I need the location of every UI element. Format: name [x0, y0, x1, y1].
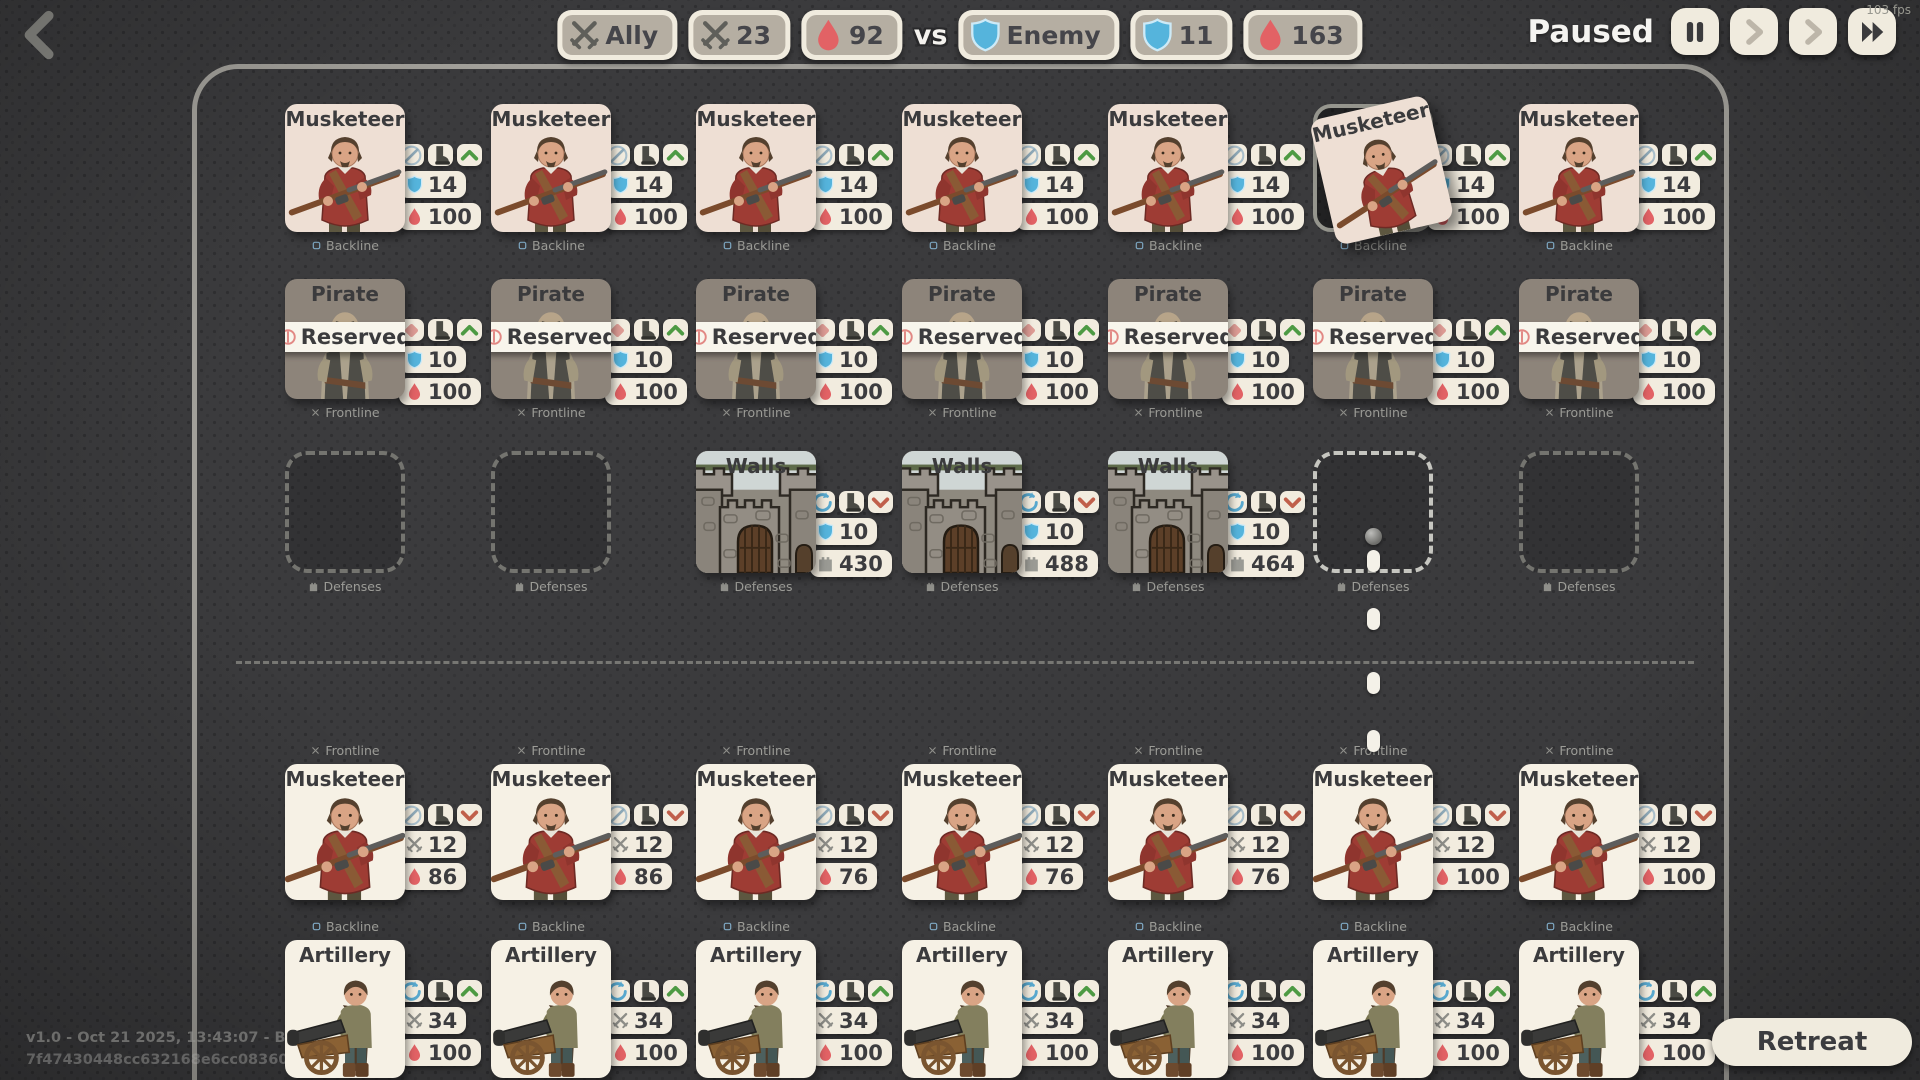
move-icon	[1251, 491, 1276, 513]
unit-card-musketeer[interactable]: Musketeer	[285, 104, 405, 232]
unit-card-pirate[interactable]: PirateReserved	[1519, 279, 1639, 399]
zone-label-defenses: Defenses	[491, 579, 611, 594]
up-icon	[457, 144, 482, 166]
frontline-icon	[1133, 745, 1144, 756]
defenses-icon	[1131, 581, 1142, 592]
unit-card-musketeer[interactable]: Musketeer	[1519, 104, 1639, 232]
unit-stats: 14100	[1016, 144, 1099, 230]
primary-stat: 10	[1016, 346, 1083, 373]
frontline-icon	[927, 745, 938, 756]
unit-stats: 12100	[1633, 804, 1716, 890]
reserved-icon	[491, 328, 503, 346]
backline-icon	[1339, 921, 1350, 932]
enemy-health-value: 163	[1291, 21, 1343, 50]
trait-badges	[1633, 804, 1716, 826]
move-icon	[428, 804, 453, 826]
down-icon	[868, 491, 893, 513]
trait-badges	[1222, 491, 1305, 513]
empty-defense-slot[interactable]	[1519, 451, 1639, 573]
trait-badges	[1633, 980, 1716, 1002]
health-stat: 76	[1016, 863, 1083, 890]
frontline-icon	[721, 745, 732, 756]
unit-card-artillery[interactable]: Artillery	[696, 940, 816, 1078]
step-icon	[1798, 17, 1828, 47]
zone-label-frontline: Frontline	[1108, 405, 1228, 420]
unit-card-musketeer[interactable]: Musketeer	[902, 764, 1022, 900]
unit-card-pirate[interactable]: PirateReserved	[1108, 279, 1228, 399]
primary-stat: 12	[399, 831, 466, 858]
swords-icon	[698, 18, 733, 53]
defenses-icon	[1336, 581, 1347, 592]
health-stat: 100	[1222, 203, 1304, 230]
blood-icon-strong	[611, 382, 630, 401]
primary-stat: 12	[1633, 831, 1700, 858]
fps-counter: 103 fps	[1866, 3, 1911, 17]
unit-card-pirate[interactable]: PirateReserved	[902, 279, 1022, 399]
card-title: Musketeer	[1313, 764, 1433, 791]
swords-icon	[1639, 1011, 1658, 1030]
blood-icon-strong	[1022, 867, 1041, 886]
reserved-banner: Reserved	[491, 322, 611, 352]
primary-stat: 10	[1427, 346, 1494, 373]
trait-badges	[1016, 980, 1099, 1002]
zone-label-backline: Backline	[1108, 919, 1228, 934]
primary-stat: 10	[1222, 346, 1289, 373]
unit-stats: 1286	[399, 804, 482, 890]
blood-icon	[810, 18, 845, 53]
artillery-art	[1108, 964, 1228, 1078]
swords-icon	[611, 1011, 630, 1030]
up-icon	[1280, 144, 1305, 166]
health-stat: 100	[810, 203, 892, 230]
unit-card-walls[interactable]: Walls	[1108, 451, 1228, 573]
unit-stats: 10488	[1016, 491, 1099, 577]
reserved-banner: Reserved	[902, 322, 1022, 352]
health-stat: 100	[1427, 1039, 1509, 1066]
unit-stats: 14100	[1633, 144, 1716, 230]
zone-label-backline: Backline	[1313, 919, 1433, 934]
primary-stat: 12	[810, 831, 877, 858]
ally-label: Ally	[605, 21, 658, 50]
blood-icon-strong	[405, 867, 424, 886]
swords-icon	[1433, 835, 1452, 854]
swords-icon	[611, 835, 630, 854]
move-icon	[1045, 980, 1070, 1002]
move-icon	[839, 144, 864, 166]
card-title: Musketeer	[1519, 104, 1639, 131]
trait-badges	[399, 144, 482, 166]
trait-badges	[1016, 144, 1099, 166]
shield-icon	[968, 18, 1003, 53]
musketeer-art	[1313, 788, 1433, 900]
unit-stats: 10430	[810, 491, 893, 577]
card-title: Musketeer	[902, 104, 1022, 131]
zone-label-frontline: Frontline	[696, 743, 816, 758]
unit-card-artillery[interactable]: Artillery	[491, 940, 611, 1078]
swords-icon	[405, 1011, 424, 1030]
zone-label-frontline: Frontline	[285, 405, 405, 420]
card-title: Musketeer	[491, 104, 611, 131]
unit-card-musketeer[interactable]: Musketeer	[696, 104, 816, 232]
up-icon	[1691, 319, 1716, 341]
health-stat: 76	[810, 863, 877, 890]
trait-badges	[1016, 319, 1099, 341]
unit-card-pirate[interactable]: PirateReserved	[285, 279, 405, 399]
musketeer-art	[1108, 788, 1228, 900]
move-icon	[1662, 319, 1687, 341]
health-stat: 100	[1633, 203, 1715, 230]
unit-stats: 1276	[810, 804, 893, 890]
zone-label-frontline: Frontline	[696, 405, 816, 420]
move-icon	[1456, 319, 1481, 341]
shield-icon	[1022, 175, 1041, 194]
move-icon	[1045, 491, 1070, 513]
blood-icon-strong	[1639, 867, 1658, 886]
unit-card-musketeer[interactable]: Musketeer	[285, 764, 405, 900]
zone-label-defenses: Defenses	[285, 579, 405, 594]
blood-icon-strong	[405, 207, 424, 226]
trait-badges	[1016, 804, 1099, 826]
unit-card-musketeer[interactable]: Musketeer	[491, 764, 611, 900]
empty-defense-slot[interactable]	[285, 451, 405, 573]
trait-badges	[1633, 144, 1716, 166]
enemy-shield-chip: 11	[1131, 10, 1233, 60]
trait-badges	[810, 804, 893, 826]
unit-stats: 10100	[1222, 319, 1305, 405]
shield-icon	[816, 350, 835, 369]
musketeer-art	[902, 128, 1022, 232]
up-icon	[1485, 980, 1510, 1002]
blood-icon-strong	[1639, 1043, 1658, 1062]
blood-icon-strong	[611, 867, 630, 886]
shield-icon	[1228, 350, 1247, 369]
backline-icon	[311, 921, 322, 932]
up-icon	[1074, 980, 1099, 1002]
zone-label-backline: Backline	[696, 238, 816, 253]
blood-icon-strong	[1228, 1043, 1247, 1062]
health-stat: 100	[1633, 1039, 1715, 1066]
blood-icon-strong	[1433, 1043, 1452, 1062]
unit-card-artillery[interactable]: Artillery	[1108, 940, 1228, 1078]
trait-badges	[1222, 144, 1305, 166]
move-icon	[1662, 804, 1687, 826]
card-title: Pirate	[696, 279, 816, 306]
up-icon	[1074, 144, 1099, 166]
primary-stat: 12	[1016, 831, 1083, 858]
zone-label-backline: Backline	[696, 919, 816, 934]
unit-stats: 1276	[1016, 804, 1099, 890]
blood-icon	[1253, 18, 1288, 53]
trajectory-dash	[1367, 550, 1380, 572]
unit-stats: 12100	[1427, 804, 1510, 890]
zone-label-frontline: Frontline	[902, 405, 1022, 420]
step-button[interactable]	[1730, 8, 1778, 55]
swords-icon	[816, 1011, 835, 1030]
defenses-icon	[719, 581, 730, 592]
unit-stats: 10100	[399, 319, 482, 405]
card-title: Musketeer	[1108, 764, 1228, 791]
unit-stats: 10464	[1222, 491, 1305, 577]
health-stat: 488	[1016, 550, 1098, 577]
unit-stats: 34100	[1633, 980, 1716, 1066]
artillery-art	[696, 964, 816, 1078]
swords-icon	[1639, 835, 1658, 854]
playback-controls: Paused	[1527, 8, 1896, 55]
zone-label-backline: Backline	[1108, 238, 1228, 253]
card-title: Musketeer	[491, 764, 611, 791]
down-icon	[1485, 804, 1510, 826]
card-title: Walls	[1108, 451, 1228, 478]
enemy-name-chip: Enemy	[958, 10, 1119, 60]
musketeer-art	[491, 128, 611, 232]
swords-icon	[816, 835, 835, 854]
primary-stat: 10	[1633, 346, 1700, 373]
fast-forward-button[interactable]	[1789, 8, 1837, 55]
primary-stat: 34	[605, 1007, 672, 1034]
enemy-health-chip: 163	[1243, 10, 1362, 60]
unit-card-musketeer[interactable]: Musketeer	[1108, 764, 1228, 900]
unit-card-walls[interactable]: Walls	[902, 451, 1022, 573]
unit-card-musketeer[interactable]: Musketeer	[696, 764, 816, 900]
primary-stat: 34	[1427, 1007, 1494, 1034]
primary-stat: 14	[605, 171, 672, 198]
artillery-art	[902, 964, 1022, 1078]
card-title: Artillery	[491, 940, 611, 967]
move-icon	[839, 804, 864, 826]
frontline-icon	[516, 407, 527, 418]
battle-screen: Ally 23 92 vs Enemy 11 163 Paused 103 fp…	[0, 0, 1920, 1080]
health-stat: 76	[1222, 863, 1289, 890]
unit-card-artillery[interactable]: Artillery	[1519, 940, 1639, 1078]
blood-icon-strong	[1228, 207, 1247, 226]
trait-badges	[399, 319, 482, 341]
move-icon	[1456, 144, 1481, 166]
primary-stat: 34	[399, 1007, 466, 1034]
musketeer-art	[1519, 128, 1639, 232]
blood-icon-strong	[1639, 207, 1658, 226]
zone-label-defenses: Defenses	[1108, 579, 1228, 594]
cannonball	[1365, 528, 1382, 545]
pause-icon	[1680, 17, 1710, 47]
unit-card-musketeer[interactable]: Musketeer	[902, 104, 1022, 232]
trait-badges	[1427, 319, 1510, 341]
frontline-icon	[927, 407, 938, 418]
ally-health-value: 92	[849, 21, 884, 50]
empty-defense-slot[interactable]	[491, 451, 611, 573]
reserved-icon	[285, 328, 297, 346]
unit-card-pirate[interactable]: PirateReserved	[1313, 279, 1433, 399]
down-icon	[457, 804, 482, 826]
move-icon	[634, 980, 659, 1002]
unit-card-artillery[interactable]: Artillery	[902, 940, 1022, 1078]
card-title: Artillery	[285, 940, 405, 967]
trait-badges	[1427, 980, 1510, 1002]
backline-icon	[928, 921, 939, 932]
trait-badges	[1222, 804, 1305, 826]
zone-label-frontline: Frontline	[285, 743, 405, 758]
card-title: Pirate	[902, 279, 1022, 306]
card-title: Artillery	[696, 940, 816, 967]
unit-card-artillery[interactable]: Artillery	[285, 940, 405, 1078]
move-icon	[1251, 319, 1276, 341]
health-stat: 86	[399, 863, 466, 890]
up-icon	[663, 144, 688, 166]
zone-label-backline: Backline	[1519, 919, 1639, 934]
reserved-icon	[902, 328, 914, 346]
blood-icon-strong	[816, 1043, 835, 1062]
trait-badges	[1633, 319, 1716, 341]
move-icon	[1251, 144, 1276, 166]
move-icon	[839, 980, 864, 1002]
unit-card-pirate[interactable]: PirateReserved	[491, 279, 611, 399]
skip-icon	[1857, 17, 1887, 47]
unit-card-artillery[interactable]: Artillery	[1313, 940, 1433, 1078]
pause-button[interactable]	[1671, 8, 1719, 55]
wall-icon	[1228, 554, 1247, 573]
primary-stat: 34	[1222, 1007, 1289, 1034]
backline-icon	[1545, 921, 1556, 932]
unit-stats: 1276	[1222, 804, 1305, 890]
primary-stat: 34	[810, 1007, 877, 1034]
unit-stats: 34100	[1016, 980, 1099, 1066]
up-icon	[1280, 319, 1305, 341]
primary-stat: 10	[1222, 518, 1289, 545]
card-title: Musketeer	[285, 104, 405, 131]
shield-icon	[405, 350, 424, 369]
trait-badges	[399, 804, 482, 826]
primary-stat: 34	[1633, 1007, 1700, 1034]
artillery-art	[491, 964, 611, 1078]
card-title: Musketeer	[285, 764, 405, 791]
card-title: Walls	[696, 451, 816, 478]
backline-icon	[928, 240, 939, 251]
shield-icon	[816, 522, 835, 541]
up-icon	[1691, 980, 1716, 1002]
primary-stat: 10	[810, 518, 877, 545]
backline-icon	[1134, 921, 1145, 932]
health-stat: 100	[1427, 863, 1509, 890]
health-stat: 86	[605, 863, 672, 890]
health-stat: 430	[810, 550, 892, 577]
move-icon	[428, 319, 453, 341]
trait-badges	[605, 980, 688, 1002]
musketeer-art	[696, 788, 816, 900]
swords-icon	[1022, 1011, 1041, 1030]
unit-card-pirate[interactable]: PirateReserved	[696, 279, 816, 399]
midfield-divider	[236, 661, 1694, 664]
up-icon	[1485, 144, 1510, 166]
move-icon	[1456, 980, 1481, 1002]
move-icon	[428, 144, 453, 166]
frontline-icon	[1544, 407, 1555, 418]
zone-label-backline: Backline	[285, 919, 405, 934]
unit-card-musketeer[interactable]: Musketeer	[1313, 764, 1433, 900]
up-icon	[663, 980, 688, 1002]
reserved-banner: Reserved	[285, 322, 405, 352]
reserved-banner: Reserved	[696, 322, 816, 352]
trait-badges	[810, 319, 893, 341]
frontline-icon	[1338, 745, 1349, 756]
health-stat: 100	[1633, 863, 1715, 890]
health-stat: 100	[1222, 1039, 1304, 1066]
zone-label-frontline: Frontline	[491, 405, 611, 420]
zone-label-backline: Backline	[1519, 238, 1639, 253]
frontline-icon	[721, 407, 732, 418]
wall-icon	[1022, 554, 1041, 573]
blood-icon-strong	[1228, 382, 1247, 401]
blood-icon-strong	[611, 207, 630, 226]
enemy-shield-value: 11	[1179, 21, 1214, 50]
zone-label-backline: Backline	[1313, 238, 1433, 253]
zone-label-defenses: Defenses	[1313, 579, 1433, 594]
trait-badges	[810, 980, 893, 1002]
unit-grid: Backline14100MusketeerBackline14100Muske…	[0, 0, 1920, 1080]
unit-card-walls[interactable]: Walls	[696, 451, 816, 573]
move-icon	[1251, 980, 1276, 1002]
down-icon	[1280, 804, 1305, 826]
frontline-icon	[310, 745, 321, 756]
unit-card-musketeer[interactable]: Musketeer	[1108, 104, 1228, 232]
unit-stats: 34100	[810, 980, 893, 1066]
health-stat: 100	[605, 1039, 687, 1066]
wall-icon	[816, 554, 835, 573]
health-stat: 100	[1222, 378, 1304, 405]
health-stat: 100	[1016, 378, 1098, 405]
card-title: Pirate	[1108, 279, 1228, 306]
move-icon	[839, 491, 864, 513]
blood-icon-strong	[405, 1043, 424, 1062]
up-icon	[457, 319, 482, 341]
shield-icon	[405, 175, 424, 194]
unit-card-musketeer[interactable]: Musketeer	[1519, 764, 1639, 900]
health-stat: 464	[1222, 550, 1304, 577]
shield-icon	[816, 175, 835, 194]
unit-stats: 14100	[605, 144, 688, 230]
trait-badges	[1016, 491, 1099, 513]
trajectory-dash	[1367, 730, 1380, 752]
zone-label-frontline: Frontline	[1108, 743, 1228, 758]
shield-icon	[1639, 175, 1658, 194]
move-icon	[634, 804, 659, 826]
up-icon	[1074, 319, 1099, 341]
down-icon	[1280, 491, 1305, 513]
musketeer-art	[285, 128, 405, 232]
zone-label-frontline: Frontline	[902, 743, 1022, 758]
musketeer-art	[902, 788, 1022, 900]
zone-label-frontline: Frontline	[1313, 405, 1433, 420]
shield-icon	[1140, 18, 1175, 53]
artillery-art	[285, 964, 405, 1078]
backline-icon	[722, 921, 733, 932]
primary-stat: 10	[399, 346, 466, 373]
unit-card-musketeer[interactable]: Musketeer	[491, 104, 611, 232]
shield-icon	[1228, 522, 1247, 541]
primary-stat: 14	[399, 171, 466, 198]
reserved-icon	[696, 328, 708, 346]
card-title: Musketeer	[1519, 764, 1639, 791]
blood-icon-strong	[405, 382, 424, 401]
unit-stats: 1286	[605, 804, 688, 890]
move-icon	[428, 980, 453, 1002]
primary-stat: 12	[1427, 831, 1494, 858]
frontline-icon	[1133, 407, 1144, 418]
shield-icon	[611, 175, 630, 194]
ally-health-chip: 92	[801, 10, 903, 60]
retreat-button[interactable]: Retreat	[1712, 1018, 1912, 1066]
trait-badges	[1222, 980, 1305, 1002]
frontline-icon	[310, 407, 321, 418]
unit-stats: 14100	[399, 144, 482, 230]
